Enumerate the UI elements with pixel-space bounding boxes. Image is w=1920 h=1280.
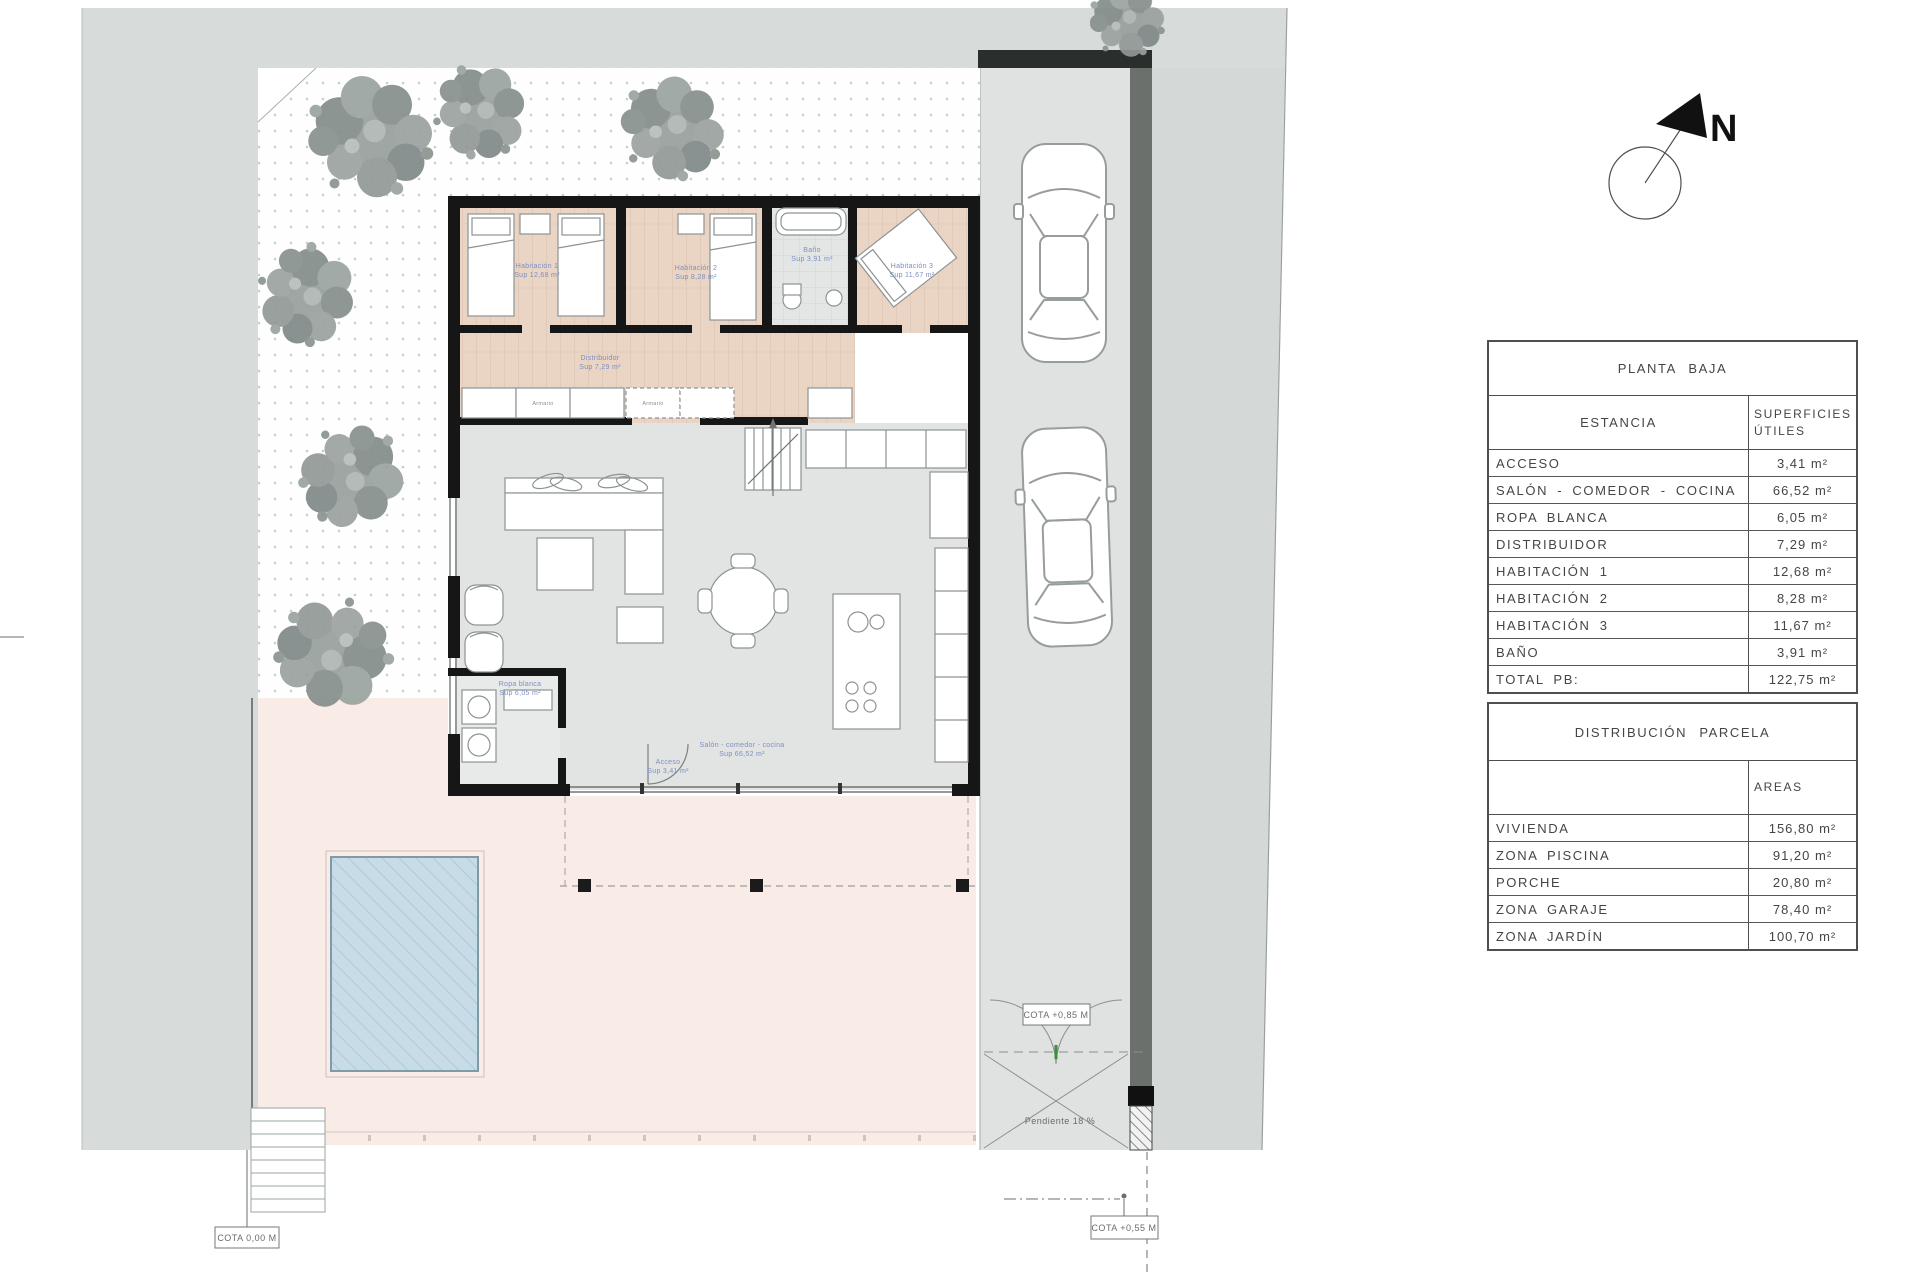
table-row: TOTAL PB:122,75 m² bbox=[1489, 666, 1856, 692]
row-value: 3,91 m² bbox=[1748, 639, 1856, 665]
row-name: PORCHE bbox=[1489, 869, 1748, 895]
north-letter: N bbox=[1710, 108, 1737, 150]
ropa-blanca-label: Ropa blanca bbox=[499, 681, 542, 688]
cota-gate-label: COTA +0,85 M bbox=[1023, 1010, 1088, 1020]
row-value: 91,20 m² bbox=[1748, 842, 1856, 868]
superficies-line2: ÚTILES bbox=[1754, 423, 1856, 439]
north-arrow: N bbox=[1609, 93, 1737, 219]
bano-label: Baño bbox=[803, 247, 821, 254]
table-row: DISTRIBUIDOR7,29 m² bbox=[1489, 531, 1856, 558]
cota-ground-label: COTA 0,00 M bbox=[217, 1233, 276, 1243]
row-value: 20,80 m² bbox=[1748, 869, 1856, 895]
row-value: 122,75 m² bbox=[1748, 666, 1856, 692]
table-row: ACCESO3,41 m² bbox=[1489, 450, 1856, 477]
table-row: HABITACIÓN 28,28 m² bbox=[1489, 585, 1856, 612]
hab2-label: Habitación 2 bbox=[675, 265, 718, 272]
row-name: TOTAL PB: bbox=[1489, 666, 1748, 692]
table-row: ZONA GARAJE78,40 m² bbox=[1489, 896, 1856, 923]
row-value: 66,52 m² bbox=[1748, 477, 1856, 503]
estancia-header: ESTANCIA bbox=[1489, 396, 1748, 449]
ropa-blanca-area-label: Sup 6,05 m² bbox=[499, 690, 541, 697]
distribuidor-area-label: Sup 7,29 m² bbox=[579, 364, 621, 371]
car-top bbox=[1014, 144, 1114, 362]
planta-baja-title: PLANTA BAJA bbox=[1489, 342, 1856, 396]
armario-label-2: Armario bbox=[642, 401, 663, 407]
empty-header bbox=[1489, 761, 1748, 814]
areas-label: AREAS bbox=[1754, 779, 1856, 795]
planta-baja-table: PLANTA BAJA ESTANCIA SUPERFICIES ÚTILES … bbox=[1487, 340, 1858, 694]
row-value: 6,05 m² bbox=[1748, 504, 1856, 530]
row-value: 7,29 m² bbox=[1748, 531, 1856, 557]
distribuidor-label: Distribuidor bbox=[581, 355, 620, 362]
distribucion-parcela-title: DISTRIBUCIÓN PARCELA bbox=[1489, 704, 1856, 761]
areas-header: AREAS bbox=[1748, 761, 1856, 814]
table-row: ROPA BLANCA6,05 m² bbox=[1489, 504, 1856, 531]
planta-baja-header: ESTANCIA SUPERFICIES ÚTILES bbox=[1489, 396, 1856, 450]
row-name: ZONA JARDÍN bbox=[1489, 923, 1748, 949]
row-name: DISTRIBUIDOR bbox=[1489, 531, 1748, 557]
row-name: HABITACIÓN 3 bbox=[1489, 612, 1748, 638]
table-row: HABITACIÓN 112,68 m² bbox=[1489, 558, 1856, 585]
row-name: ACCESO bbox=[1489, 450, 1748, 476]
row-value: 12,68 m² bbox=[1748, 558, 1856, 584]
superficies-header: SUPERFICIES ÚTILES bbox=[1748, 396, 1856, 449]
salon-area-label: Sup 66,52 m² bbox=[719, 751, 765, 758]
hab1-label: Habitación 1 bbox=[516, 263, 559, 270]
table-row: PORCHE20,80 m² bbox=[1489, 869, 1856, 896]
row-value: 156,80 m² bbox=[1748, 815, 1856, 841]
floor-plan-sheet: COTA 0,00 M COTA +0,55 M COTA +0,85 M Pe… bbox=[0, 0, 1920, 1280]
row-name: ROPA BLANCA bbox=[1489, 504, 1748, 530]
table-row: HABITACIÓN 311,67 m² bbox=[1489, 612, 1856, 639]
slope-label: Pendiente 18 % bbox=[1025, 1116, 1096, 1126]
row-value: 3,41 m² bbox=[1748, 450, 1856, 476]
exterior-stairs bbox=[251, 1108, 325, 1212]
hab2-area-label: Sup 8,28 m² bbox=[675, 274, 717, 281]
table-row: BAÑO3,91 m² bbox=[1489, 639, 1856, 666]
table-row: ZONA JARDÍN100,70 m² bbox=[1489, 923, 1856, 949]
distribucion-parcela-header: AREAS bbox=[1489, 761, 1856, 815]
pool bbox=[326, 851, 484, 1077]
row-value: 8,28 m² bbox=[1748, 585, 1856, 611]
bano-area-label: Sup 3,91 m² bbox=[791, 256, 833, 263]
acceso-label: Acceso bbox=[656, 759, 681, 766]
salon-label: Salón - comedor - cocina bbox=[699, 742, 784, 749]
row-value: 78,40 m² bbox=[1748, 896, 1856, 922]
row-value: 100,70 m² bbox=[1748, 923, 1856, 949]
row-name: HABITACIÓN 2 bbox=[1489, 585, 1748, 611]
row-name: VIVIENDA bbox=[1489, 815, 1748, 841]
row-name: HABITACIÓN 1 bbox=[1489, 558, 1748, 584]
car-bottom bbox=[1013, 426, 1121, 647]
armario-label-1: Armario bbox=[532, 401, 553, 407]
row-name: BAÑO bbox=[1489, 639, 1748, 665]
hab3-label: Habitación 3 bbox=[891, 263, 934, 270]
table-row: SALÓN - COMEDOR - COCINA66,52 m² bbox=[1489, 477, 1856, 504]
row-name: ZONA PISCINA bbox=[1489, 842, 1748, 868]
row-name: ZONA GARAJE bbox=[1489, 896, 1748, 922]
table-row: VIVIENDA156,80 m² bbox=[1489, 815, 1856, 842]
acceso-area-label: Sup 3,41 m² bbox=[647, 768, 689, 775]
row-value: 11,67 m² bbox=[1748, 612, 1856, 638]
hab1-area-label: Sup 12,68 m² bbox=[514, 272, 560, 279]
distribucion-parcela-table: DISTRIBUCIÓN PARCELA AREAS VIVIENDA156,8… bbox=[1487, 702, 1858, 951]
table-row: ZONA PISCINA91,20 m² bbox=[1489, 842, 1856, 869]
cota-mid-label: COTA +0,55 M bbox=[1091, 1223, 1156, 1233]
retaining-wall bbox=[1128, 68, 1154, 1150]
superficies-line1: SUPERFICIES bbox=[1754, 406, 1856, 422]
hab3-area-label: Sup 11,67 m² bbox=[889, 272, 934, 279]
row-name: SALÓN - COMEDOR - COCINA bbox=[1489, 477, 1748, 503]
